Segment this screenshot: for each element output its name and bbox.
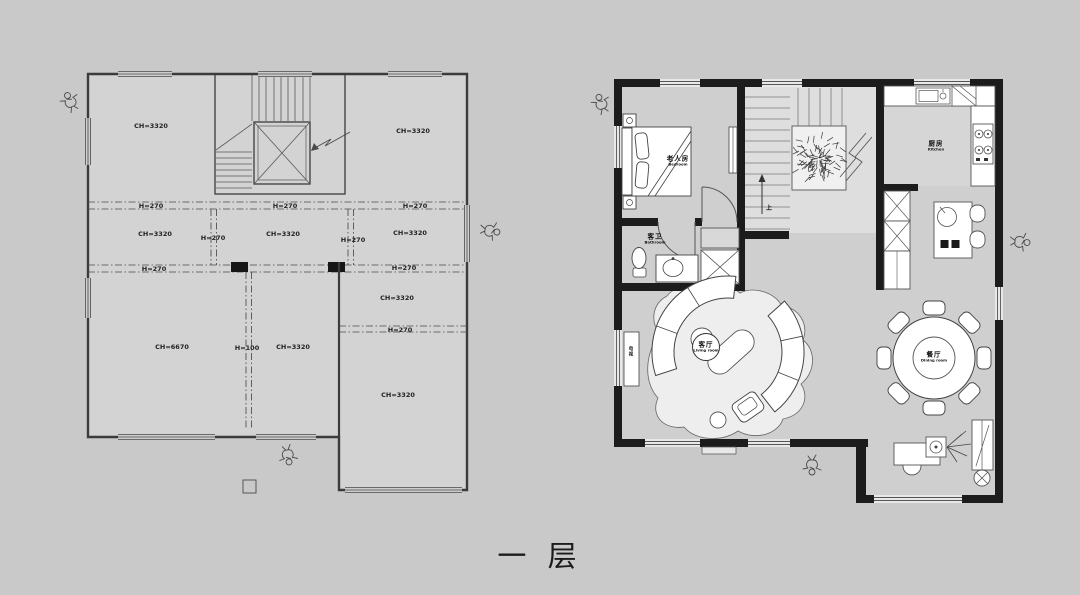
viewpoint-person-icon — [277, 444, 298, 467]
tv-label: 电视 — [627, 346, 633, 357]
floor-caption: 一 层 — [0, 533, 1080, 575]
dining-chair — [977, 347, 991, 369]
floorplan-canvas: CH=3320CH=3320H=270H=270H=270CH=3320H=27… — [0, 0, 1080, 595]
pouf — [710, 412, 726, 428]
door-stone — [243, 480, 256, 493]
dimension-label: H=270 — [388, 326, 412, 334]
pillow — [635, 132, 650, 159]
viewpoint-person-icon — [58, 89, 83, 115]
dimension-label: CH=3320 — [393, 229, 427, 237]
hob-burner — [952, 240, 960, 248]
viewpoint-person-icon — [479, 220, 502, 241]
dimension-label: H=100 — [235, 344, 259, 352]
right-plan — [614, 79, 1003, 503]
viewpoint-person-icon — [589, 91, 613, 116]
stool — [970, 205, 985, 222]
dimension-label: CH=3320 — [134, 122, 168, 130]
dimension-label: H=270 — [403, 202, 427, 210]
stair-up-label: 上 — [766, 203, 772, 212]
dimension-label: H=270 — [139, 202, 163, 210]
dining-chair — [923, 301, 945, 315]
stool — [970, 231, 985, 248]
dimension-label: H=270 — [392, 264, 416, 272]
dimension-label: CH=3320 — [380, 294, 414, 302]
room-label: 客卫Bathroom — [644, 233, 665, 244]
closet — [701, 228, 739, 248]
room-label: 客厅Living room — [693, 341, 718, 352]
dimension-label: H=270 — [142, 265, 166, 273]
column — [328, 262, 345, 272]
tv-cabinet — [624, 332, 639, 386]
dimension-label: CH=3320 — [276, 343, 310, 351]
room-label: 餐厅Dining room — [921, 351, 947, 362]
vanity — [656, 255, 698, 282]
dimension-label: H=270 — [341, 236, 365, 244]
viewpoint-person-icon — [803, 455, 821, 475]
dimension-label: CH=6670 — [155, 343, 189, 351]
dimension-label: CH=3320 — [381, 391, 415, 399]
dimension-label: H=270 — [273, 202, 297, 210]
dimension-label: CH=3320 — [138, 230, 172, 238]
floorplan-drawing — [0, 0, 1080, 595]
dining-chair — [877, 347, 891, 369]
column — [231, 262, 248, 272]
dining-chair — [923, 401, 945, 415]
pillow — [635, 162, 649, 189]
dining-room-furniture — [877, 301, 993, 486]
dimension-label: H=270 — [201, 234, 225, 242]
toilet — [632, 248, 646, 269]
room-label: 厨房Kitchen — [928, 140, 944, 151]
room-label: 老人房Bedroom — [667, 155, 690, 166]
bed-headboard — [622, 128, 632, 195]
dimension-label: CH=3320 — [266, 230, 300, 238]
hob-burner — [941, 240, 949, 248]
viewpoint-person-icon — [1009, 232, 1030, 252]
dimension-label: CH=3320 — [396, 127, 430, 135]
